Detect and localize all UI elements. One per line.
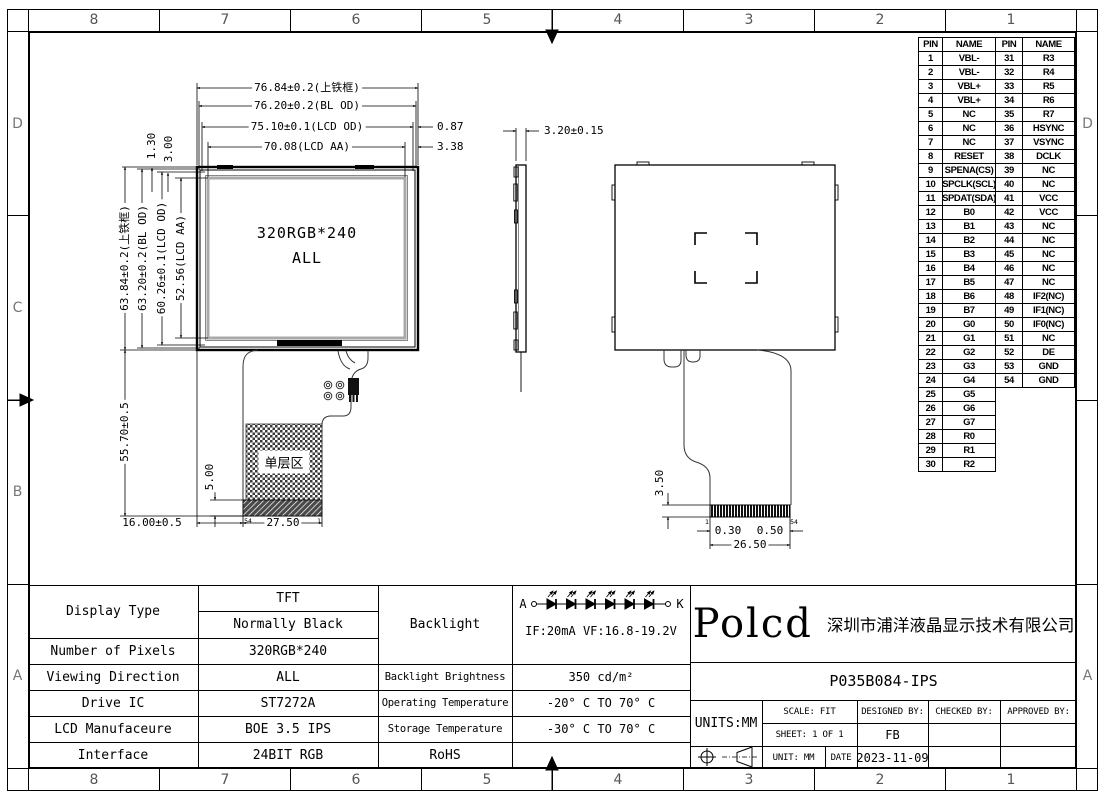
pin-table-cell <box>996 444 1023 458</box>
pin-table-cell: R1 <box>943 444 996 458</box>
pin-table-cell: B0 <box>943 206 996 220</box>
pin-table-header: PIN <box>918 37 943 52</box>
pin-table-cell: DCLK <box>1023 150 1075 164</box>
dim-130: 1.30 <box>146 131 158 162</box>
pin-table-cell: 7 <box>918 136 943 150</box>
pin-table-cell: 1 <box>918 52 943 66</box>
spec-op-temp-value: -20° C TO 70° C <box>512 690 690 716</box>
spec-pixels-value: 320RGB*240 <box>198 638 378 664</box>
spec-interface-value: 24BIT RGB <box>198 742 378 769</box>
pin-table-cell: 4 <box>918 94 943 108</box>
dim-lcd-od-height: 60.26±0.1(LCD OD) <box>156 200 168 317</box>
dim-pin-pitch: 0.50 <box>755 525 786 537</box>
dim-stiffener: 5.00 <box>204 462 216 493</box>
pin-table-cell: VBL- <box>943 66 996 80</box>
pin-table-cell: HSYNC <box>1023 122 1075 136</box>
pin-table-cell <box>1023 388 1075 402</box>
pin-table-cell: 30 <box>918 458 943 472</box>
pin-table-cell: 29 <box>918 444 943 458</box>
dim-pin-width: 0.30 <box>713 525 744 537</box>
pin-table-cell: SPDAT(SDA) <box>943 192 996 206</box>
pin-table-cell: NC <box>1023 276 1075 290</box>
pin-table-cell: 6 <box>918 122 943 136</box>
pin-table-cell: NC <box>1023 178 1075 192</box>
pin-table-cell: DE <box>1023 346 1075 360</box>
pin-table-cell: R7 <box>1023 108 1075 122</box>
back-view <box>612 162 838 505</box>
spec-display-type-label: Display Type <box>28 585 198 638</box>
pin-table-cell: G6 <box>943 402 996 416</box>
pin-table-cell: VBL- <box>943 52 996 66</box>
pin-table-cell: B1 <box>943 220 996 234</box>
screen-viewing-label: ALL <box>292 249 322 267</box>
spec-brightness-label: Backlight Brightness <box>378 664 512 690</box>
pin-table-cell: SPCLK(SCL) <box>943 178 996 192</box>
pin-table-cell: NC <box>1023 234 1075 248</box>
pin-table-cell: NC <box>1023 164 1075 178</box>
pin-table-cell: 12 <box>918 206 943 220</box>
pin-table-cell: 47 <box>996 276 1023 290</box>
pin-table-cell: VBL+ <box>943 80 996 94</box>
dim-frame-height: 63.84±0.2(上铁框) <box>119 203 131 313</box>
spec-op-temp-label: Operating Temperature <box>378 690 512 716</box>
pin-table-cell <box>996 416 1023 430</box>
projection-symbol <box>698 747 757 767</box>
dim-conn-height: 3.50 <box>654 468 666 499</box>
pin-table-cell: 27 <box>918 416 943 430</box>
pin-table-cell: 46 <box>996 262 1023 276</box>
pin-table-cell: 49 <box>996 304 1023 318</box>
pin-table-cell: 52 <box>996 346 1023 360</box>
pin-table-cell <box>996 458 1023 472</box>
dim-edge-087: 0.87 <box>435 121 466 133</box>
pin-table: PINNAMEPINNAME1VBL-31R32VBL-32R43VBL+33R… <box>918 37 1075 472</box>
pin-table-cell: IF2(NC) <box>1023 290 1075 304</box>
pin-table-cell: G4 <box>943 374 996 388</box>
pin-table-cell: G2 <box>943 346 996 360</box>
pin-table-cell: 11 <box>918 192 943 206</box>
pin-table-cell: VCC <box>1023 206 1075 220</box>
pin-table-cell: 38 <box>996 150 1023 164</box>
pin-table-header: NAME <box>1023 37 1075 52</box>
pin-table-cell: NC <box>1023 262 1075 276</box>
dim-lcd-aa-height: 52.56(LCD AA) <box>175 213 187 303</box>
pin-table-cell: 20 <box>918 318 943 332</box>
pin-table-cell: 36 <box>996 122 1023 136</box>
pin-table-cell: IF0(NC) <box>1023 318 1075 332</box>
units-cell: UNITS:MM <box>690 700 762 746</box>
pin-table-cell: 43 <box>996 220 1023 234</box>
dim-lcd-aa-width: 70.08(LCD AA) <box>262 141 352 153</box>
stiffener-hatch <box>243 500 322 516</box>
pin-table-cell: IF1(NC) <box>1023 304 1075 318</box>
side-view <box>514 165 526 392</box>
pin-table-cell: NC <box>943 122 996 136</box>
dim-fpc-offset: 16.00±0.5 <box>120 517 184 529</box>
pin-table-cell <box>1023 416 1075 430</box>
spec-viewing-value: ALL <box>198 664 378 690</box>
pin-table-cell: 51 <box>996 332 1023 346</box>
pin-table-cell: VSYNC <box>1023 136 1075 150</box>
pin-table-cell: B6 <box>943 290 996 304</box>
pin-table-cell: 39 <box>996 164 1023 178</box>
pin-table-cell: 17 <box>918 276 943 290</box>
pin-table-cell: 19 <box>918 304 943 318</box>
pin-table-header: NAME <box>943 37 996 52</box>
pin-table-cell: GND <box>1023 360 1075 374</box>
pin-table-cell: 48 <box>996 290 1023 304</box>
pin-table-cell <box>1023 402 1075 416</box>
pin-table-cell: NC <box>1023 220 1075 234</box>
pin-table-cell: B7 <box>943 304 996 318</box>
pin-table-cell: R3 <box>1023 52 1075 66</box>
pin-table-cell: 42 <box>996 206 1023 220</box>
spec-manufacture-value: BOE 3.5 IPS <box>198 716 378 742</box>
pin-table-cell <box>1023 444 1075 458</box>
pin-table-cell: G0 <box>943 318 996 332</box>
center-brackets <box>695 233 757 283</box>
pin-table-cell: 53 <box>996 360 1023 374</box>
pin-table-cell: 16 <box>918 262 943 276</box>
pin-table-cell: B4 <box>943 262 996 276</box>
led-cathode-label: K <box>672 596 688 612</box>
dim-edge-338: 3.38 <box>435 141 466 153</box>
spec-rohs-label: RoHS <box>378 742 512 769</box>
dim-frame-width: 76.84±0.2(上铁框) <box>252 82 362 94</box>
pin-table-cell: 5 <box>918 108 943 122</box>
pin-table-cell: 45 <box>996 248 1023 262</box>
pin-table-cell: 24 <box>918 374 943 388</box>
pin-table-cell: B5 <box>943 276 996 290</box>
back-connector <box>710 505 790 517</box>
pin-table-cell: 2 <box>918 66 943 80</box>
pin-table-cell: 21 <box>918 332 943 346</box>
front-pin1-label: 1 <box>317 518 321 525</box>
pin-table-cell: 34 <box>996 94 1023 108</box>
pin-table-cell: R5 <box>1023 80 1075 94</box>
pin-table-cell: G1 <box>943 332 996 346</box>
spec-st-temp-value: -30° C TO 70° C <box>512 716 690 742</box>
pin-table-cell: NC <box>943 136 996 150</box>
pin-table-cell: 50 <box>996 318 1023 332</box>
pin-table-cell: VBL+ <box>943 94 996 108</box>
led-spec-text: IF:20mA VF:16.8-19.2V <box>512 620 690 642</box>
pin-table-cell: G5 <box>943 388 996 402</box>
pin-table-cell: 37 <box>996 136 1023 150</box>
spec-viewing-label: Viewing Direction <box>28 664 198 690</box>
pin-table-cell: NC <box>1023 248 1075 262</box>
pin-table-cell: 31 <box>996 52 1023 66</box>
pin-table-cell: NC <box>943 108 996 122</box>
pin-table-cell: 23 <box>918 360 943 374</box>
pin-table-cell: 26 <box>918 402 943 416</box>
pin-table-cell: B2 <box>943 234 996 248</box>
led-diagram <box>532 591 671 609</box>
dim-lcd-od-width: 75.10±0.1(LCD OD) <box>249 121 366 133</box>
side-dimensions <box>503 128 539 161</box>
pin-table-cell: 41 <box>996 192 1023 206</box>
date-value-cell: 2023-11-09 <box>857 746 928 769</box>
back-pin1-label: 1 <box>705 519 709 526</box>
spec-display-type-value2: Normally Black <box>198 611 378 638</box>
part-number: P035B084-IPS <box>690 662 1077 700</box>
checked-by-cell: CHECKED BY: <box>928 700 1000 723</box>
pin-table-cell: R6 <box>1023 94 1075 108</box>
dim-bl-od-width: 76.20±0.2(BL OD) <box>252 100 362 112</box>
pin-table-cell: 13 <box>918 220 943 234</box>
date-label-cell: DATE <box>825 746 857 769</box>
spec-display-type-value1: TFT <box>198 585 378 611</box>
pin-table-cell: SPENA(CS) <box>943 164 996 178</box>
pin-table-cell: 44 <box>996 234 1023 248</box>
pin-table-cell: R2 <box>943 458 996 472</box>
pin-table-cell: B3 <box>943 248 996 262</box>
pin-table-cell: RESET <box>943 150 996 164</box>
pin-table-cell: NC <box>1023 332 1075 346</box>
pin-table-cell: 9 <box>918 164 943 178</box>
pin-table-cell: R4 <box>1023 66 1075 80</box>
back-pin54-label: 54 <box>790 519 798 526</box>
spec-manufacture-label: LCD Manufaceure <box>28 716 198 742</box>
pin-table-cell: 3 <box>918 80 943 94</box>
pin-table-cell <box>1023 458 1075 472</box>
single-layer-zone-label: 单层区 <box>258 451 309 474</box>
pin-table-cell: 40 <box>996 178 1023 192</box>
dim-fpc-length: 55.70±0.5 <box>119 400 131 464</box>
pin-table-cell <box>1023 430 1075 444</box>
pin-table-cell: 28 <box>918 430 943 444</box>
approved-by-cell: APPROVED BY: <box>1000 700 1077 723</box>
pin-table-cell: G3 <box>943 360 996 374</box>
pin-table-cell <box>996 402 1023 416</box>
pin-table-cell: 15 <box>918 248 943 262</box>
pin-table-cell: 35 <box>996 108 1023 122</box>
unit-cell: UNIT: MM <box>762 746 825 769</box>
dim-conn-width: 26.50 <box>731 539 768 551</box>
pin-table-cell: 33 <box>996 80 1023 94</box>
screen-resolution-label: 320RGB*240 <box>257 224 357 242</box>
pin-table-cell: 14 <box>918 234 943 248</box>
pin-table-cell: 25 <box>918 388 943 402</box>
pin-table-cell: R0 <box>943 430 996 444</box>
spec-st-temp-label: Storage Temperature <box>378 716 512 742</box>
dim-fpc-width: 27.50 <box>264 517 301 529</box>
spec-drive-ic-label: Drive IC <box>28 690 198 716</box>
spec-backlight-label: Backlight <box>378 585 512 664</box>
pin-table-header: PIN <box>996 37 1023 52</box>
dim-thickness: 3.20±0.15 <box>542 125 606 137</box>
front-pin54-label: 54 <box>244 518 252 525</box>
sheet-cell: SHEET: 1 OF 1 <box>762 723 857 746</box>
spec-pixels-label: Number of Pixels <box>28 638 198 664</box>
company-name: 深圳市浦洋液晶显示技术有限公司 <box>827 612 1075 636</box>
back-fpc <box>664 350 791 505</box>
drawing-sheet: 87654321 87654321 DCBA DA <box>0 0 1106 800</box>
led-anode-label: A <box>515 596 531 612</box>
pin-table-cell: 54 <box>996 374 1023 388</box>
logo-block: Polcd 深圳市浦洋液晶显示技术有限公司 <box>690 585 1077 662</box>
dim-bl-od-height: 63.20±0.2(BL OD) <box>137 203 149 313</box>
dim-300: 3.00 <box>163 134 175 165</box>
pin-table-cell: G7 <box>943 416 996 430</box>
spec-drive-ic-value: ST7272A <box>198 690 378 716</box>
pin-table-cell <box>996 430 1023 444</box>
pin-table-cell: 22 <box>918 346 943 360</box>
pin-table-cell: 32 <box>996 66 1023 80</box>
designer-cell: FB <box>857 723 928 746</box>
pin-table-cell: VCC <box>1023 192 1075 206</box>
spec-brightness-value: 350 cd/m² <box>512 664 690 690</box>
scale-cell: SCALE: FIT <box>762 700 857 723</box>
designed-by-cell: DESIGNED BY: <box>857 700 928 723</box>
pin-table-cell: GND <box>1023 374 1075 388</box>
company-logo: Polcd <box>693 601 813 647</box>
pin-table-cell: 10 <box>918 178 943 192</box>
pin-table-cell <box>996 388 1023 402</box>
pin-table-cell: 8 <box>918 150 943 164</box>
pin-table-cell: 18 <box>918 290 943 304</box>
spec-interface-label: Interface <box>28 742 198 769</box>
